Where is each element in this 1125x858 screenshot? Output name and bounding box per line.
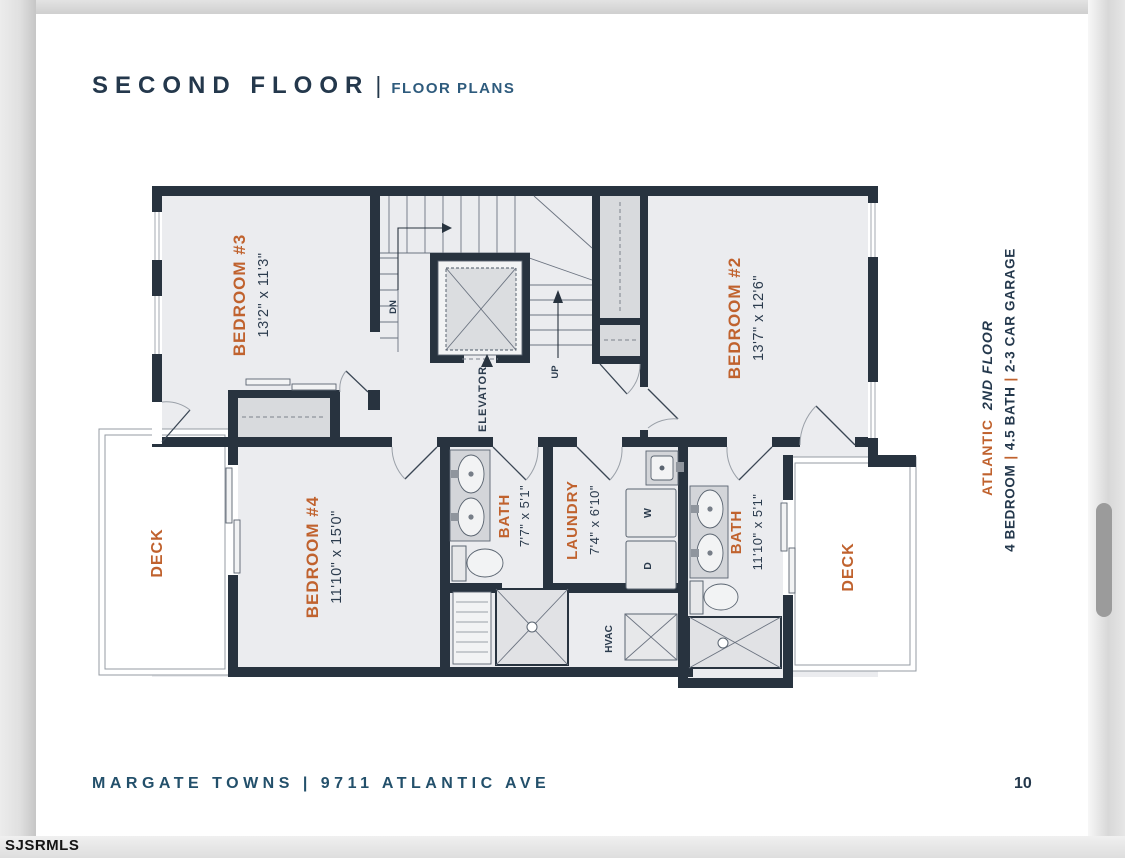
frame-right	[1088, 0, 1125, 858]
document-page: SECOND FLOOR | FLOOR PLANS	[0, 0, 1125, 858]
page-number: 10	[1014, 775, 1032, 793]
toilet-tank	[690, 581, 703, 614]
elevator-label: ELEVATOR	[477, 366, 489, 432]
room-dims-bedroom-4: 11'10" x 15'0"	[329, 510, 345, 604]
up-label: UP	[550, 365, 561, 379]
room-dims-bath-right: 11'10" x 5'1"	[750, 494, 765, 571]
hvac-label: HVAC	[604, 625, 615, 653]
frame-left	[0, 0, 36, 858]
room-label-bedroom-2: BEDROOM #2	[725, 257, 744, 379]
page-header: SECOND FLOOR | FLOOR PLANS	[92, 72, 515, 100]
toilet-icon	[704, 584, 738, 610]
elevator-shaft	[430, 253, 530, 367]
footer-address: MARGATE TOWNS | 9711 ATLANTIC AVE	[92, 775, 550, 793]
plan-note-line2: 4 BEDROOM|4.5 BATH|2-3 CAR GARAGE	[1003, 248, 1018, 552]
spec-separator: |	[1003, 377, 1018, 381]
toilet-icon	[467, 549, 503, 577]
frame-bottom	[0, 836, 1125, 858]
dryer-label: D	[642, 562, 654, 570]
page-title: SECOND FLOOR	[92, 72, 369, 100]
room-label-laundry: LAUNDRY	[564, 480, 581, 560]
page-subtitle: FLOOR PLANS	[391, 80, 515, 97]
spec-bedrooms: 4 BEDROOM	[1003, 465, 1018, 552]
room-label-bedroom-4: BEDROOM #4	[303, 496, 322, 618]
room-dims-bath-center: 7'7" x 5'1"	[517, 485, 532, 547]
toilet-tank	[452, 546, 466, 581]
plan-note-line1: ATLANTIC2ND FLOOR	[979, 320, 995, 496]
plan-name: ATLANTIC	[979, 419, 995, 496]
room-dims-laundry: 7'4" x 6'10"	[587, 485, 602, 555]
spec-separator: |	[1003, 455, 1018, 459]
room-label-deck-right: DECK	[840, 542, 857, 591]
room-label-bath-center: BATH	[496, 494, 513, 539]
spec-baths: 4.5 BATH	[1003, 386, 1018, 450]
plan-floor: 2ND FLOOR	[979, 320, 995, 410]
room-label-bath-right: BATH	[728, 510, 745, 555]
frame-top	[0, 0, 1125, 14]
room-dims-bedroom-2: 13'7" x 12'6"	[751, 275, 767, 361]
washer-label: W	[642, 508, 654, 518]
watermark: SJSRMLS	[5, 837, 79, 854]
scrollbar-thumb[interactable]	[1096, 503, 1112, 617]
title-separator: |	[375, 72, 381, 99]
spec-garage: 2-3 CAR GARAGE	[1003, 248, 1018, 372]
down-label: DN	[388, 300, 399, 314]
room-label-deck-left: DECK	[149, 528, 166, 577]
room-dims-bedroom-3: 13'2" x 11'3"	[256, 253, 272, 338]
room-label-bedroom-3: BEDROOM #3	[230, 234, 249, 356]
floor-plan: BEDROOM #3 13'2" x 11'3" BEDROOM #2 13'7…	[90, 180, 930, 695]
